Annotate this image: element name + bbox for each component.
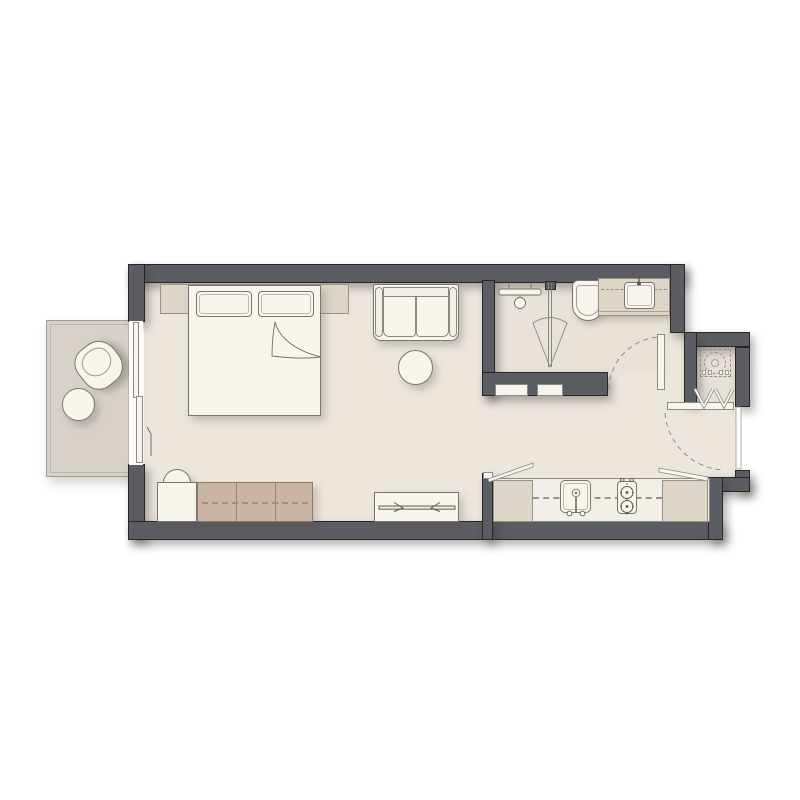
toilet-bowl-line <box>576 285 600 316</box>
kitchen-cabinet-right <box>662 480 708 522</box>
balcony-chair-back <box>77 342 117 382</box>
wardrobe-rail-dashed <box>202 502 308 504</box>
entry-floor <box>684 404 736 478</box>
cooktop-icon <box>617 481 637 514</box>
kitchen-sink-icon <box>560 480 591 513</box>
washer-foot-1 <box>702 370 706 375</box>
washer-foot-2 <box>708 370 712 375</box>
bathroom-door-leaf <box>657 334 665 390</box>
wall-step-vertical <box>708 477 723 540</box>
sofa-seat-left <box>383 296 416 337</box>
pillow-right <box>258 291 314 317</box>
pillow-left <box>196 291 252 317</box>
kitchen-upper-cabinet-dashed <box>533 497 662 499</box>
wall-left-upper-stub <box>128 264 145 322</box>
washer-drum-center <box>711 359 719 367</box>
wall-shower-pier <box>545 281 556 290</box>
entry-door-sill <box>736 407 741 469</box>
loveseat-sofa-icon <box>373 284 459 341</box>
kitchen-cabinet-left <box>493 480 533 522</box>
washing-machine-icon <box>700 349 731 377</box>
floor-plan-canvas <box>0 0 800 800</box>
wall-niche-left <box>684 332 697 404</box>
sofa-arm-right <box>449 287 457 337</box>
sliding-door-panel-2 <box>136 396 143 463</box>
vanity-front-edge <box>599 311 669 312</box>
wall-bathroom-right <box>670 264 685 333</box>
niche-threshold <box>667 402 734 410</box>
tv-console-icon <box>374 492 459 522</box>
kitchen-sink-rim <box>563 483 588 510</box>
ottoman-icon <box>398 350 433 385</box>
sofa-seat-right <box>416 296 449 337</box>
pillow-left-seam <box>199 294 249 314</box>
sliding-door-panel-1 <box>133 322 139 398</box>
vanity-sink-icon <box>624 282 655 309</box>
dresser-icon <box>157 482 197 522</box>
kitchen-stub-cap <box>483 472 493 479</box>
vanity-sink-rim <box>627 285 652 306</box>
washer-foot-4 <box>725 370 729 375</box>
pillow-right-seam <box>261 294 311 314</box>
wall-right-upper <box>735 347 750 407</box>
sofa-arm-left <box>375 287 383 337</box>
washer-foot-3 <box>719 370 723 375</box>
shower-door-opening <box>495 384 528 396</box>
wall-kitchen-stub <box>482 473 493 540</box>
balcony-table-icon <box>62 388 95 421</box>
toilet-door-opening <box>537 384 563 396</box>
wardrobe-icon <box>197 482 313 522</box>
wall-bottom <box>128 521 723 540</box>
